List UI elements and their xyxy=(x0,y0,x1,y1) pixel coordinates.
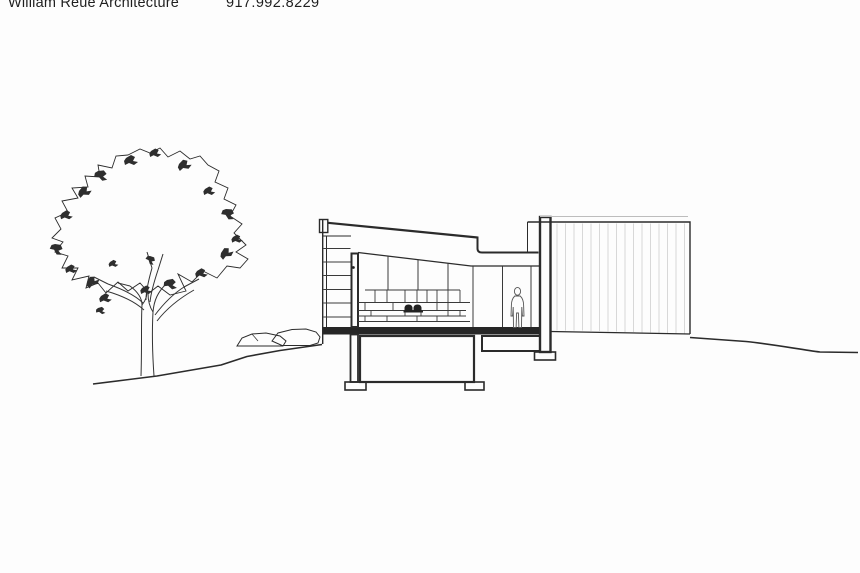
basement-room xyxy=(360,336,474,382)
grade-line-left xyxy=(93,345,322,385)
shelving xyxy=(324,249,351,318)
grade-line-right xyxy=(690,338,858,353)
tree-canopy xyxy=(52,148,248,295)
boulders xyxy=(237,329,320,346)
kitchen-millwork xyxy=(358,290,470,322)
tree-trunk xyxy=(94,252,199,376)
crawl-space xyxy=(482,336,540,351)
shed-roof xyxy=(328,223,539,253)
clad-volume xyxy=(528,217,691,335)
section-drawing xyxy=(0,0,860,573)
left-wall xyxy=(320,220,352,345)
counter-bowls xyxy=(404,305,424,313)
human-figure xyxy=(511,287,524,327)
floor-slab xyxy=(322,327,540,335)
foundation xyxy=(345,335,556,391)
tree xyxy=(49,148,248,376)
door xyxy=(352,254,359,328)
tree-leaf-clusters xyxy=(49,148,243,330)
cladding-lines xyxy=(557,224,685,334)
